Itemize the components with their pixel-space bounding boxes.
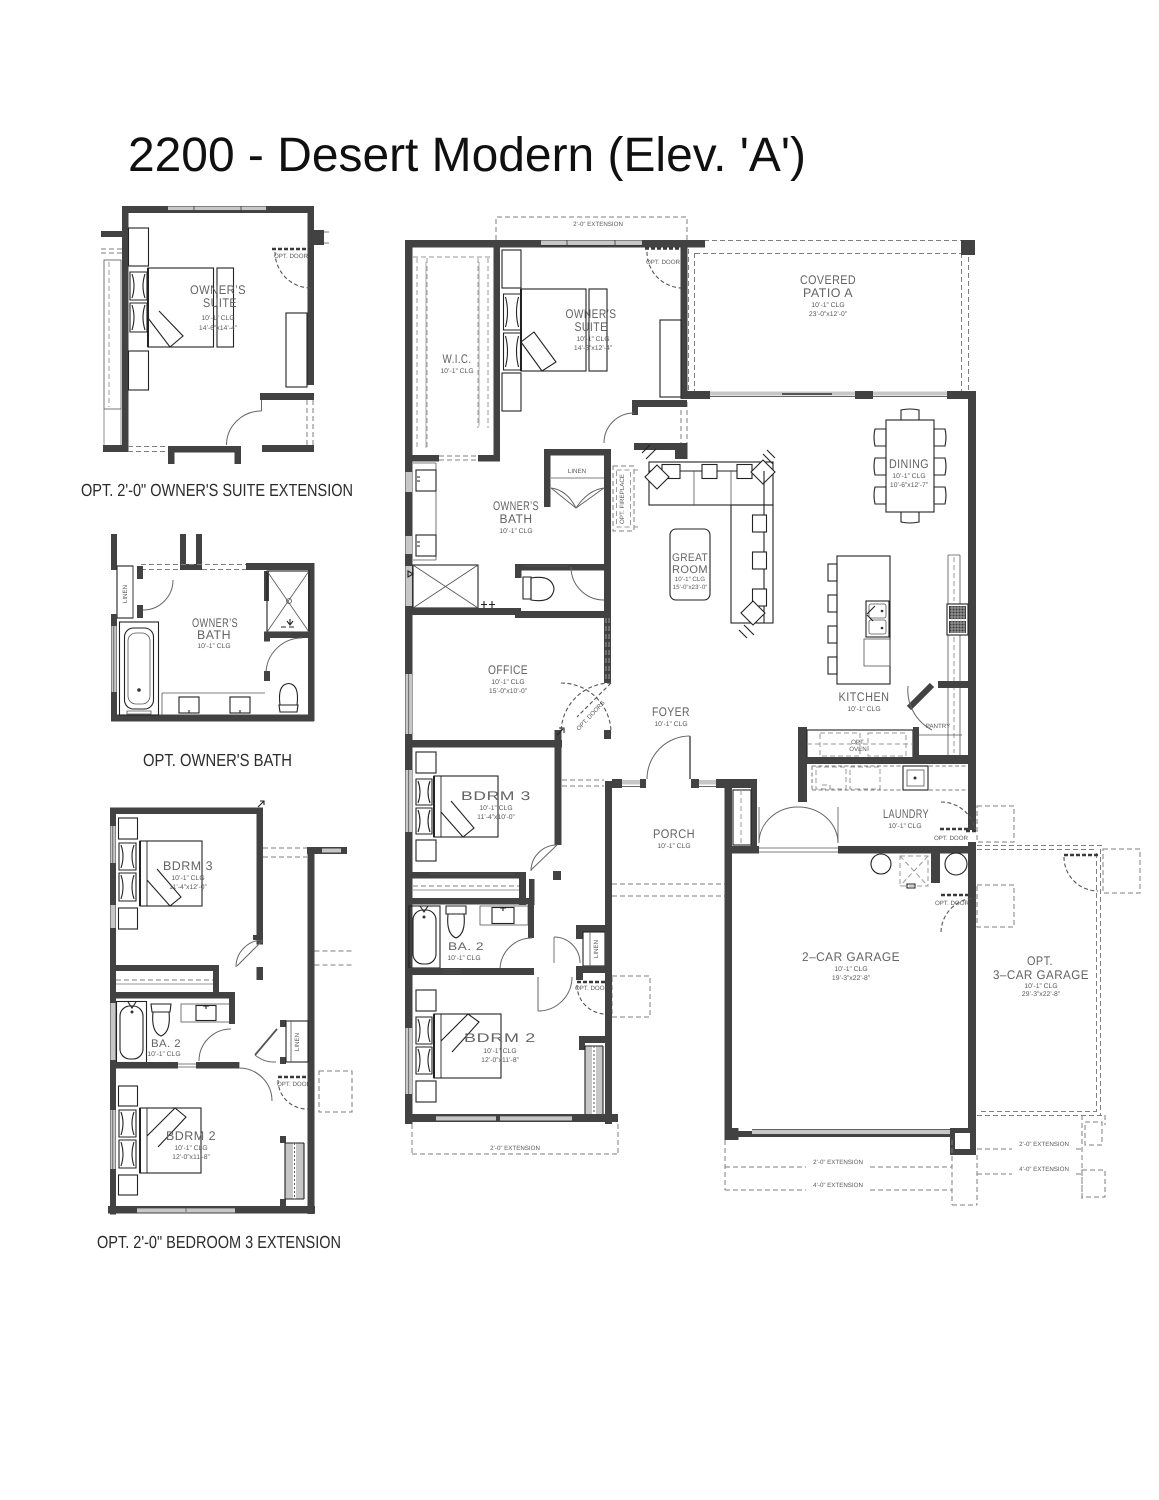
svg-text:LINEN: LINEN [568, 468, 586, 475]
svg-text:10’-1” CLG: 10’-1” CLG [576, 336, 609, 343]
svg-text:OWNER’S: OWNER’S [190, 283, 246, 297]
svg-text:BA. 2: BA. 2 [151, 1038, 181, 1050]
svg-text:11’-4”x12’-0”: 11’-4”x12’-0” [169, 884, 207, 891]
svg-text:11’-4”x10’-0”: 11’-4”x10’-0” [477, 814, 515, 821]
svg-text:ROOM: ROOM [672, 564, 708, 576]
svg-text:10’-1” CLG: 10’-1” CLG [447, 955, 480, 962]
svg-text:10’-1” CLG: 10’-1” CLG [811, 302, 844, 309]
svg-text:GREAT: GREAT [672, 552, 708, 564]
svg-text:10’-1” CLG: 10’-1” CLG [171, 875, 204, 882]
svg-text:10’-1” CLG: 10’-1” CLG [847, 706, 880, 713]
svg-text:LAUNDRY: LAUNDRY [883, 807, 929, 821]
svg-text:10’-1” CLG: 10’-1” CLG [197, 643, 230, 650]
svg-text:BDRM 3: BDRM 3 [163, 859, 213, 873]
svg-text:10’-1” CLG: 10’-1” CLG [657, 843, 690, 850]
svg-text:OPT.: OPT. [1027, 954, 1053, 968]
svg-text:10’-1” CLG: 10’-1” CLG [1024, 983, 1057, 990]
svg-text:BDRM 2: BDRM 2 [464, 1031, 536, 1045]
svg-text:OFFICE: OFFICE [488, 663, 528, 677]
svg-text:29’-3”x22’-8”: 29’-3”x22’-8” [1022, 991, 1061, 998]
svg-text:19’-3”x22’-8”: 19’-3”x22’-8” [832, 975, 871, 982]
svg-text:14’-6”x12’-4”: 14’-6”x12’-4” [574, 345, 613, 352]
svg-text:10’-1” CLG: 10’-1” CLG [499, 528, 532, 535]
svg-text:2200 - Desert Modern (Elev. 'A: 2200 - Desert Modern (Elev. 'A') [128, 128, 806, 182]
svg-text:BATH: BATH [500, 512, 533, 526]
svg-text:W.I.C.: W.I.C. [443, 352, 472, 366]
svg-text:12’-0”x11’-8”: 12’-0”x11’-8” [481, 1057, 519, 1064]
svg-text:12’-0”x11’-8”: 12’-0”x11’-8” [172, 1154, 210, 1161]
svg-text:SUITE: SUITE [575, 320, 608, 334]
svg-text:KITCHEN: KITCHEN [839, 690, 890, 704]
svg-text:23’-0”x12’-0”: 23’-0”x12’-0” [809, 311, 848, 318]
svg-text:15’-0”x23’-0”: 15’-0”x23’-0” [673, 584, 708, 591]
svg-text:2’-0” EXTENSION: 2’-0” EXTENSION [490, 1145, 540, 1152]
svg-text:OPT. DOOR: OPT. DOOR [935, 900, 970, 907]
svg-text:PATIO A: PATIO A [803, 286, 853, 300]
svg-text:FOYER: FOYER [652, 705, 690, 719]
svg-text:10’-1” CLG: 10’-1” CLG [491, 679, 524, 686]
svg-text:BATH: BATH [197, 628, 231, 642]
svg-text:BDRM 3: BDRM 3 [461, 789, 531, 803]
svg-text:OPT. 2'-0" OWNER'S SUITE EXTEN: OPT. 2'-0" OWNER'S SUITE EXTENSION [81, 480, 353, 500]
svg-text:10’-1” CLG: 10’-1” CLG [888, 823, 921, 830]
svg-text:LINEN: LINEN [294, 1033, 301, 1051]
svg-text:10’-1” CLG: 10’-1” CLG [201, 315, 234, 322]
svg-text:10’-1” CLG: 10’-1” CLG [834, 966, 867, 973]
svg-text:15’-0”x10’-0”: 15’-0”x10’-0” [489, 688, 528, 695]
svg-text:COVERED: COVERED [800, 273, 856, 287]
svg-text:OWNER’S: OWNER’S [566, 307, 617, 321]
svg-text:10’-1” CLG: 10’-1” CLG [440, 368, 473, 375]
svg-text:4’-0” EXTENSION: 4’-0” EXTENSION [1019, 1166, 1069, 1173]
svg-text:OPT. FIREPLACE: OPT. FIREPLACE [619, 474, 626, 524]
svg-text:4’-0” EXTENSION: 4’-0” EXTENSION [813, 1182, 863, 1189]
svg-text:10’-1” CLG: 10’-1” CLG [654, 721, 687, 728]
svg-text:10’-1” CLG: 10’-1” CLG [479, 805, 512, 812]
svg-text:OPT. DOOR: OPT. DOOR [934, 835, 969, 842]
svg-text:10’-1” CLG: 10’-1” CLG [147, 1051, 180, 1058]
svg-text:2–CAR GARAGE: 2–CAR GARAGE [802, 950, 900, 964]
svg-text:OPT. DOOR: OPT. DOOR [277, 1081, 312, 1088]
svg-text:2’-0” EXTENSION: 2’-0” EXTENSION [813, 1159, 863, 1166]
svg-text:10’-1” CLG: 10’-1” CLG [174, 1145, 207, 1152]
svg-text:10’-1” CLG: 10’-1” CLG [675, 576, 705, 583]
svg-text:3–CAR GARAGE: 3–CAR GARAGE [993, 968, 1089, 982]
svg-text:BDRM 2: BDRM 2 [166, 1129, 216, 1143]
svg-text:OVEN: OVEN [849, 746, 867, 753]
svg-text:10’-1” CLG: 10’-1” CLG [892, 473, 925, 480]
svg-text:2’-0” EXTENSION: 2’-0” EXTENSION [573, 221, 623, 228]
svg-text:OWNER’S: OWNER’S [493, 499, 539, 513]
svg-text:LINEN: LINEN [593, 940, 600, 958]
svg-text:SUITE: SUITE [203, 296, 237, 310]
svg-text:LINEN: LINEN [122, 585, 129, 603]
svg-text:PANTRY: PANTRY [926, 723, 951, 730]
svg-text:DINING: DINING [889, 457, 929, 471]
svg-text:OPT. DOOR: OPT. DOOR [575, 985, 610, 992]
svg-text:OPT. DOOR: OPT. DOOR [646, 259, 681, 266]
svg-text:10’-6”x12’-7”: 10’-6”x12’-7” [890, 482, 929, 489]
svg-text:2’-0” EXTENSION: 2’-0” EXTENSION [1019, 1141, 1069, 1148]
svg-text:BA. 2: BA. 2 [448, 941, 484, 953]
svg-text:OPT. 2'-0" BEDROOM 3 EXTENSION: OPT. 2'-0" BEDROOM 3 EXTENSION [97, 1232, 341, 1252]
svg-text:OPT.: OPT. [851, 739, 865, 746]
svg-text:PORCH: PORCH [653, 827, 695, 841]
svg-text:OPT. DOOR: OPT. DOOR [274, 253, 309, 260]
svg-text:14’-6”x14’-4”: 14’-6”x14’-4” [199, 325, 238, 332]
svg-text:OPT. OWNER'S BATH: OPT. OWNER'S BATH [143, 750, 292, 770]
svg-text:10’-1” CLG: 10’-1” CLG [483, 1048, 516, 1055]
